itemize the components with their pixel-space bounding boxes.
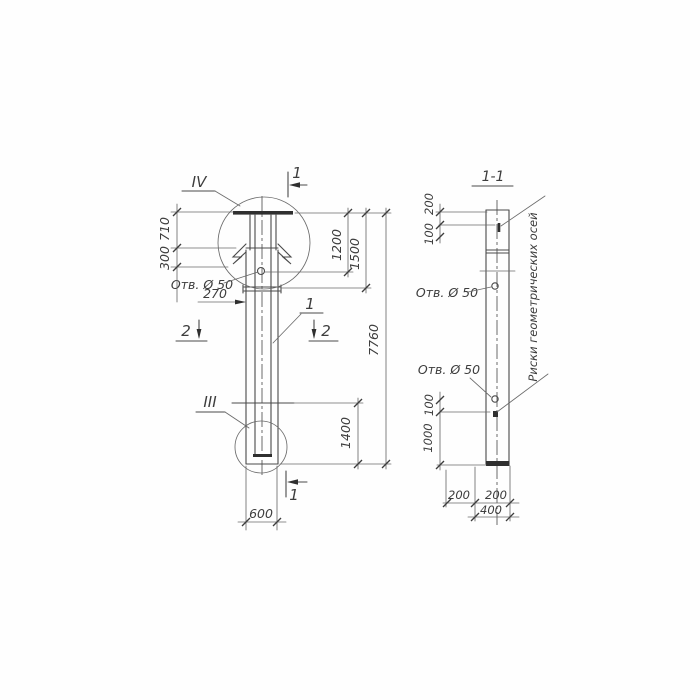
detail-iv-label: IV: [192, 173, 208, 191]
section-marker-2-left: 2: [176, 320, 207, 341]
dim-600-label: 600: [249, 506, 273, 521]
dim-100-top-label: 100: [422, 223, 436, 245]
dim-1400-label: 1400: [338, 417, 353, 449]
dim-1200-label: 1200: [329, 229, 344, 261]
section-title-label: 1-1: [482, 169, 505, 185]
axes-note: Риски геометрических осей: [497, 196, 548, 412]
dim-600: 600: [238, 466, 286, 530]
top-plate: [233, 211, 293, 215]
part-label-1: 1: [273, 295, 323, 343]
dim-200-top-label: 200: [422, 193, 436, 215]
dims-bottom-200-400: 200 200 400: [443, 466, 519, 521]
section-2-right-label: 2: [321, 322, 331, 340]
dim-1000-label: 1000: [421, 423, 435, 452]
section-1-bottom-label: 1: [289, 486, 299, 504]
detail-marker-iii: III: [196, 393, 249, 428]
detail-circle-iv: [218, 197, 310, 289]
hole-callout-lower: Отв. Ø 50: [418, 362, 491, 397]
dims-top-200-100: 200 100: [422, 193, 495, 245]
part-1-label: 1: [305, 295, 315, 313]
dim-7760-label: 7760: [366, 324, 381, 356]
dim-200-left-label: 200: [448, 488, 470, 502]
detail-circle-iii: [235, 421, 287, 473]
section-marker-1-top: 1: [288, 164, 307, 197]
dim-710-label: 710: [157, 217, 172, 241]
detail-marker-iv: IV: [182, 173, 240, 206]
hole-label-upper: Отв. Ø 50: [416, 285, 478, 300]
dim-270-label: 270: [203, 286, 227, 301]
left-bracket-fin: [233, 244, 246, 264]
detail-iii-label: III: [203, 393, 217, 411]
dims-low-100-1000: 100 1000: [421, 392, 490, 470]
dim-270: 270: [198, 286, 246, 304]
section-1-top-label: 1: [292, 164, 302, 182]
dim-1500-label: 1500: [347, 238, 362, 270]
dim-300-label: 300: [157, 246, 172, 270]
dim-400-label: 400: [480, 503, 502, 517]
drawing-sheet: IV III 1 1 2: [0, 0, 700, 700]
dim-200-right-label: 200: [485, 488, 507, 502]
axes-note-label: Риски геометрических осей: [526, 212, 540, 382]
hole-callout-upper: Отв. Ø 50: [416, 285, 491, 300]
section-2-left-label: 2: [181, 322, 191, 340]
section-view-1-1: 1-1 200 100: [416, 169, 548, 525]
front-view: IV III 1 1 2: [157, 164, 391, 530]
hole-circle-front: [258, 268, 265, 275]
section-marker-1-bottom: 1: [286, 471, 307, 504]
section-column-base: [486, 461, 510, 466]
inner-tube-bottom: [253, 454, 272, 457]
section-title: 1-1: [472, 169, 513, 186]
section-marker-2-right: 2: [309, 320, 338, 341]
right-bracket-fin: [278, 244, 291, 264]
hole-label-lower: Отв. Ø 50: [418, 362, 480, 377]
technical-drawing-canvas: IV III 1 1 2: [0, 0, 700, 700]
dim-100-mid-label: 100: [422, 394, 436, 416]
